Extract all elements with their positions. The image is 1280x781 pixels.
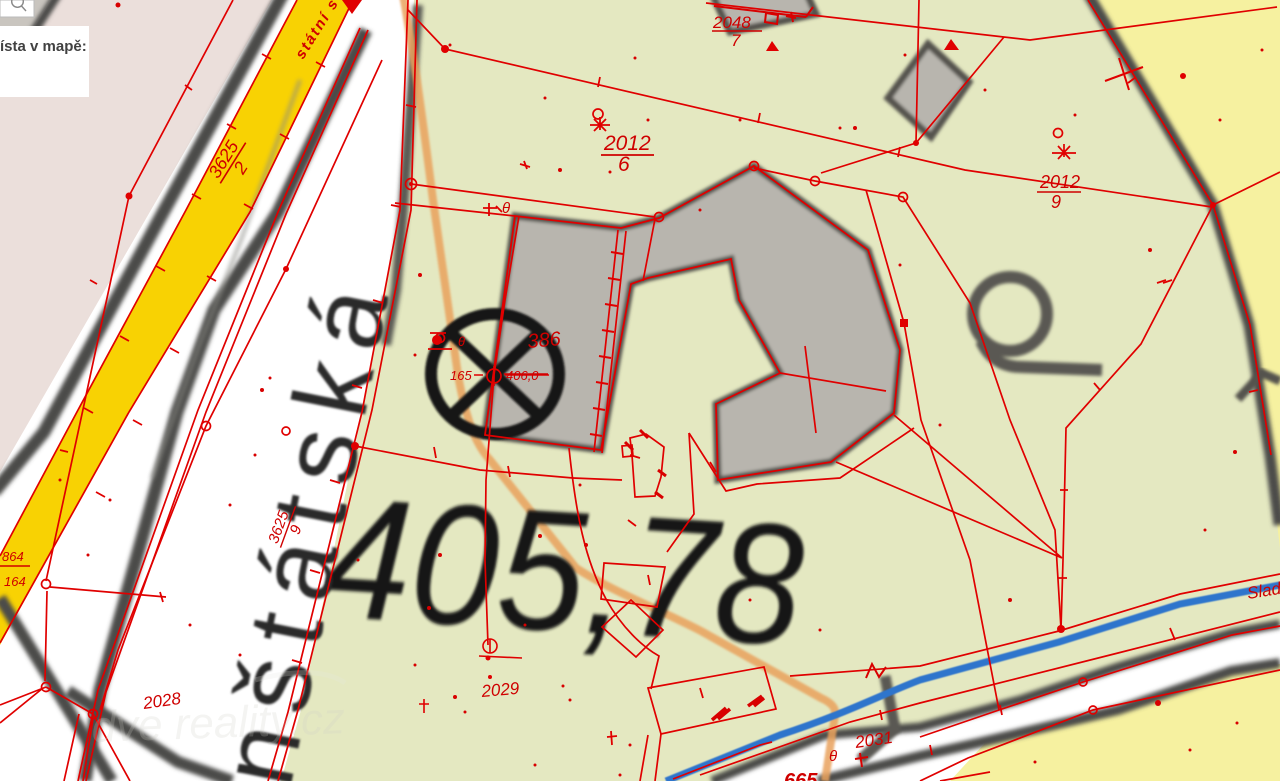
svg-text:6: 6 (618, 153, 630, 176)
svg-text:665: 665 (784, 770, 818, 781)
svg-text:386: 386 (527, 328, 563, 353)
svg-text:405,78: 405,78 (319, 460, 809, 681)
svg-text:ísta v mapě:: ísta v mapě: (0, 38, 87, 55)
svg-text:864: 864 (2, 549, 24, 564)
svg-text:2029: 2029 (480, 679, 521, 701)
svg-text:2012: 2012 (1039, 172, 1080, 192)
svg-text:164: 164 (4, 574, 26, 589)
svg-text:dve reality.cz: dve reality.cz (91, 694, 346, 752)
svg-text:2012: 2012 (603, 132, 651, 155)
svg-text:θ: θ (502, 200, 510, 217)
svg-text:9: 9 (1051, 192, 1061, 212)
svg-text:θ: θ (458, 334, 465, 349)
svg-text:2048: 2048 (712, 13, 751, 32)
svg-text:θ: θ (829, 748, 837, 765)
svg-text:7: 7 (731, 31, 741, 50)
svg-text:406,0: 406,0 (506, 368, 539, 383)
svg-text:165: 165 (450, 368, 472, 383)
